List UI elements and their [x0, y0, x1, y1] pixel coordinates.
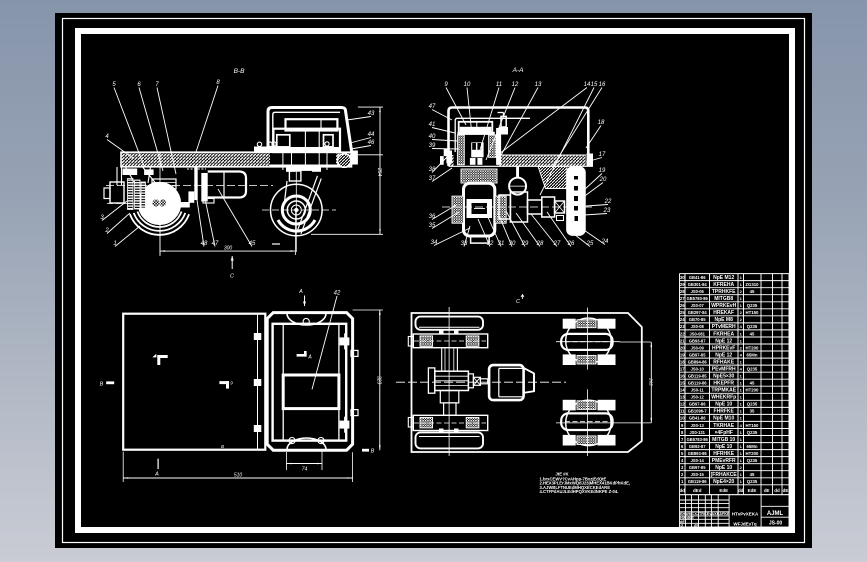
svg-text:dd: dd — [774, 488, 780, 493]
svg-text:Q235: Q235 — [747, 367, 758, 372]
svg-text:HPRKEvF: HPRKEvF — [712, 345, 735, 351]
svg-text:C: C — [516, 299, 520, 305]
svg-text:11: 11 — [680, 409, 685, 414]
svg-text:29: 29 — [680, 282, 685, 287]
svg-text:NpE 12: NpE 12 — [715, 352, 732, 358]
svg-text:PMEvRFR: PMEvRFR — [712, 458, 736, 464]
svg-text:JS0-09: JS0-09 — [691, 345, 705, 350]
svg-text:13: 13 — [535, 82, 542, 88]
svg-text:254: 254 — [376, 167, 382, 177]
svg-text:1: 1 — [113, 241, 116, 247]
svg-text:30: 30 — [680, 275, 685, 280]
svg-text:RFHAKE: RFHAKE — [713, 359, 734, 365]
svg-text:40: 40 — [429, 134, 436, 140]
svg-text:43: 43 — [368, 111, 375, 117]
svg-text:EdE: EdE — [748, 488, 757, 493]
svg-text:38: 38 — [429, 167, 436, 173]
svg-text:KFREHA: KFREHA — [713, 282, 734, 288]
svg-text:27: 27 — [680, 296, 685, 301]
svg-text:dF: dF — [694, 524, 699, 528]
svg-text:TKRHAE: TKRHAE — [713, 423, 734, 429]
svg-text:FHRFKE: FHRFKE — [714, 409, 735, 415]
svg-text:dE: dE — [764, 488, 770, 493]
svg-text:20: 20 — [599, 177, 607, 183]
svg-text:GB41-86: GB41-86 — [689, 275, 706, 280]
svg-text:19: 19 — [680, 352, 685, 357]
svg-text:NpE4×20: NpE4×20 — [713, 479, 734, 485]
svg-text:GB297-84: GB297-84 — [688, 310, 708, 315]
svg-text:Q235: Q235 — [747, 324, 758, 329]
svg-text:18: 18 — [680, 359, 685, 364]
svg-text:HKEPFR: HKEPFR — [713, 381, 734, 387]
svg-text:510: 510 — [234, 473, 243, 479]
svg-text:JS-00: JS-00 — [769, 521, 783, 527]
svg-text:EdE: EdE — [719, 488, 728, 493]
svg-text:GB1096-7: GB1096-7 — [688, 409, 708, 414]
svg-text:GB5780-86: GB5780-86 — [687, 296, 709, 301]
svg-text:25: 25 — [680, 310, 685, 315]
svg-text:36: 36 — [429, 214, 436, 220]
svg-text:HFRHKE: HFRHKE — [713, 451, 734, 457]
svg-text:GB70-85: GB70-85 — [689, 317, 706, 322]
svg-text:JS0-11: JS0-11 — [691, 388, 705, 393]
svg-text:31: 31 — [498, 241, 505, 247]
svg-text:HT150: HT150 — [746, 423, 760, 428]
svg-text:13: 13 — [680, 395, 685, 400]
svg-text:41: 41 — [429, 122, 436, 128]
svg-text:[FRHAKCE: [FRHAKCE — [711, 472, 738, 478]
svg-text:B: B — [371, 449, 375, 455]
svg-text:48: 48 — [201, 241, 208, 247]
svg-text:39: 39 — [429, 143, 436, 149]
svg-text:JS0-06: JS0-06 — [691, 289, 705, 294]
svg-text:WPRKEvH: WPRKEvH — [711, 303, 736, 309]
svg-text:46: 46 — [368, 140, 375, 146]
svg-text:GB119-85: GB119-85 — [688, 374, 707, 379]
svg-text:HT200: HT200 — [746, 345, 760, 350]
svg-text:NpE M8: NpE M8 — [715, 317, 734, 323]
svg-text:15: 15 — [680, 381, 685, 386]
svg-text:300: 300 — [224, 246, 233, 252]
svg-text:65Mn: 65Mn — [747, 444, 758, 449]
svg-text:Q235: Q235 — [747, 303, 758, 308]
svg-text:34: 34 — [431, 240, 438, 246]
svg-text:NpE 10: NpE 10 — [715, 465, 732, 471]
svg-text:JS0-10: JS0-10 — [691, 367, 705, 372]
svg-text:47: 47 — [212, 241, 219, 247]
svg-text:FKRHEA: FKRHEA — [713, 331, 734, 337]
svg-text:42: 42 — [334, 291, 341, 297]
svg-text:12: 12 — [680, 402, 685, 407]
svg-text:25: 25 — [586, 241, 594, 247]
svg-text:WFJdEvTq: WFJdEvTq — [733, 522, 757, 527]
svg-text:HTvPvXEKA: HTvPvXEKA — [732, 512, 759, 517]
svg-text:MITGB8: MITGB8 — [714, 296, 733, 302]
svg-text:28: 28 — [536, 241, 544, 247]
svg-text:Q235: Q235 — [747, 402, 758, 407]
svg-text:B-B: B-B — [234, 68, 246, 75]
svg-text:C: C — [230, 274, 234, 280]
svg-text:GB893-86: GB893-86 — [688, 451, 708, 456]
svg-text:dd: dd — [738, 488, 744, 493]
svg-text:A-A: A-A — [512, 67, 524, 74]
svg-text:WHEKRFp: WHEKRFp — [711, 395, 736, 401]
svg-text:GB119-86: GB119-86 — [688, 381, 707, 386]
svg-text:47: 47 — [429, 104, 436, 110]
svg-text:A: A — [298, 289, 303, 295]
svg-text:×4FpHF: ×4FpHF — [714, 430, 732, 436]
svg-text:16: 16 — [680, 374, 685, 379]
svg-text:JS0-131: JS0-131 — [689, 430, 705, 435]
svg-text:22: 22 — [680, 331, 685, 336]
svg-text:17: 17 — [680, 367, 685, 372]
svg-text:15: 15 — [591, 82, 598, 88]
svg-text:26: 26 — [680, 303, 685, 308]
svg-text:18: 18 — [598, 120, 605, 126]
svg-text:GB97-85: GB97-85 — [689, 352, 706, 357]
svg-text:A: A — [307, 355, 312, 361]
svg-text:14: 14 — [680, 388, 685, 393]
svg-text:30: 30 — [509, 241, 516, 247]
svg-text:GB97-85: GB97-85 — [689, 465, 706, 470]
svg-text:NpE5×30: NpE5×30 — [713, 374, 734, 380]
svg-text:GB93-87: GB93-87 — [689, 444, 706, 449]
svg-text:23: 23 — [603, 208, 611, 214]
svg-text:B: B — [100, 382, 104, 388]
svg-text:GB119-86: GB119-86 — [688, 479, 707, 484]
svg-text:PTvMERH: PTvMERH — [712, 324, 736, 330]
svg-text:MITGB 10: MITGB 10 — [712, 437, 735, 443]
svg-text:GB5783-86: GB5783-86 — [687, 437, 709, 442]
svg-text:19: 19 — [599, 168, 606, 174]
svg-text:74: 74 — [302, 467, 308, 473]
svg-text:GB41-86: GB41-86 — [689, 416, 706, 421]
svg-text:NpE 10: NpE 10 — [715, 402, 732, 408]
svg-text:NpE 10: NpE 10 — [715, 444, 732, 450]
svg-text:45: 45 — [750, 331, 755, 336]
svg-text:AJML: AJML — [767, 511, 784, 517]
svg-text:65Mn: 65Mn — [747, 352, 758, 357]
svg-text:Q235: Q235 — [747, 430, 758, 435]
svg-text:ZG310: ZG310 — [745, 282, 759, 287]
svg-text:HT150: HT150 — [746, 310, 760, 315]
svg-text:4.CTFPdAUJLEdHPQXVKEdNKPE Z-04: 4.CTFPdAUJLEdHPQXVKEdNKPE Z-04. — [540, 489, 619, 494]
svg-text:TRPMKAE: TRPMKAE — [711, 388, 736, 394]
svg-text:35: 35 — [750, 409, 755, 414]
svg-text:27: 27 — [553, 241, 561, 247]
svg-text:21: 21 — [680, 338, 685, 343]
svg-text:HT200: HT200 — [746, 451, 760, 456]
svg-text:PEvMFRH: PEvMFRH — [712, 367, 736, 373]
svg-text:26: 26 — [567, 241, 575, 247]
svg-text:dEd: dEd — [693, 488, 702, 493]
svg-text:HREKAF: HREKAF — [713, 310, 734, 316]
svg-text:10: 10 — [464, 82, 471, 88]
svg-text:JS0-15: JS0-15 — [691, 472, 705, 477]
svg-text:JS0-07: JS0-07 — [691, 303, 705, 308]
svg-text:NpE M10: NpE M10 — [713, 416, 734, 422]
svg-text:20: 20 — [680, 345, 685, 350]
svg-text:262: 262 — [649, 377, 654, 386]
svg-text:2: 2 — [104, 228, 109, 234]
svg-text:JS0-14: JS0-14 — [691, 458, 705, 463]
svg-text:12: 12 — [512, 82, 519, 88]
svg-text:GB301-84: GB301-84 — [688, 282, 708, 287]
svg-text:35: 35 — [429, 223, 436, 229]
svg-text:33: 33 — [461, 241, 468, 247]
svg-text:37: 37 — [429, 176, 436, 182]
svg-text:JS0-13: JS0-13 — [691, 423, 705, 428]
svg-text:45: 45 — [750, 381, 755, 386]
svg-text:45: 45 — [249, 241, 256, 247]
svg-text:JS0-08: JS0-08 — [691, 324, 705, 329]
svg-text:JS0-081: JS0-081 — [689, 331, 705, 336]
svg-text:323: 323 — [376, 376, 382, 385]
svg-text:44: 44 — [368, 132, 375, 138]
svg-text:32: 32 — [487, 241, 494, 247]
svg-text:24: 24 — [680, 317, 685, 322]
svg-text:dd: dd — [679, 488, 685, 493]
svg-text:GB97-86: GB97-86 — [689, 402, 706, 407]
svg-text:NpE M12: NpE M12 — [713, 275, 734, 281]
svg-text:A: A — [154, 472, 159, 478]
svg-text:NpE 12: NpE 12 — [715, 338, 732, 344]
svg-text:45: 45 — [750, 289, 755, 294]
svg-text:23: 23 — [680, 324, 685, 329]
svg-text:28: 28 — [680, 289, 685, 294]
svg-text:dE: dE — [783, 488, 789, 493]
svg-text:JS0-12: JS0-12 — [691, 395, 705, 400]
svg-text:16: 16 — [599, 82, 606, 88]
svg-text:22: 22 — [604, 199, 612, 205]
svg-text:Q235: Q235 — [747, 458, 758, 463]
svg-text:11: 11 — [496, 82, 502, 88]
svg-text:Q235: Q235 — [747, 479, 758, 484]
svg-text:45: 45 — [750, 472, 755, 477]
svg-text:17: 17 — [599, 152, 606, 158]
svg-text:HT200: HT200 — [746, 388, 760, 393]
svg-text:GB93-87: GB93-87 — [689, 338, 706, 343]
svg-text:29: 29 — [521, 241, 529, 247]
svg-text:B: B — [221, 444, 224, 449]
svg-text:24: 24 — [601, 239, 609, 245]
svg-text:GB894-86: GB894-86 — [688, 359, 708, 364]
svg-text:10: 10 — [680, 416, 685, 421]
svg-text:TPRHKFE: TPRHKFE — [712, 289, 736, 295]
